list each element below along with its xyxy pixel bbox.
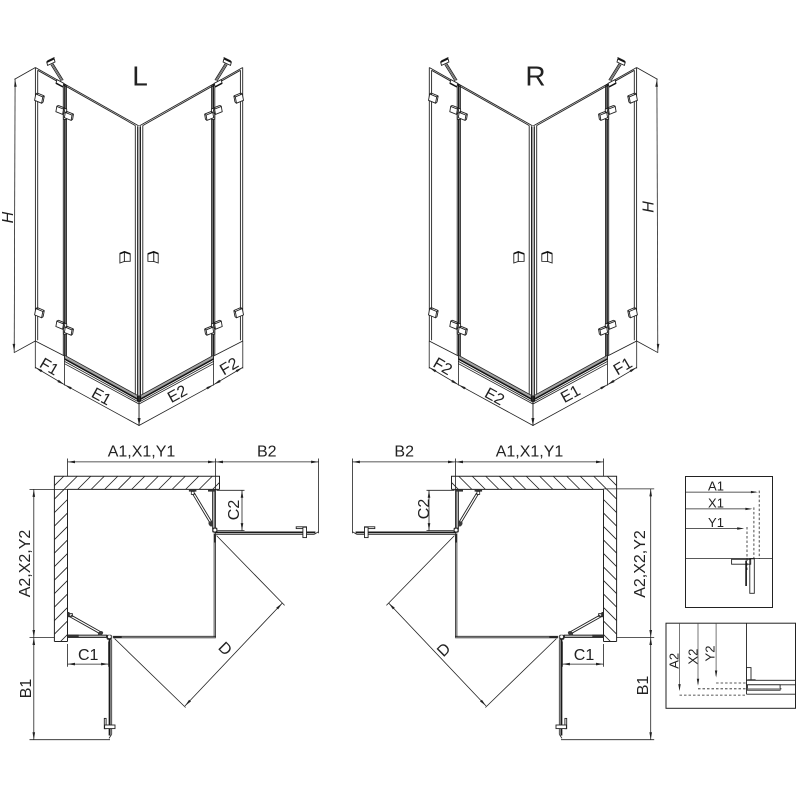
- svg-text:B1: B1: [18, 679, 35, 699]
- svg-text:A1,X1,Y1: A1,X1,Y1: [496, 444, 564, 461]
- svg-text:B1: B1: [635, 676, 652, 696]
- svg-text:C1: C1: [78, 647, 99, 664]
- svg-text:X1: X1: [708, 496, 724, 511]
- svg-text:Y1: Y1: [708, 515, 724, 530]
- svg-text:C2: C2: [416, 499, 433, 520]
- svg-text:A2,X2,Y2: A2,X2,Y2: [632, 530, 649, 598]
- svg-text:C2: C2: [226, 500, 243, 521]
- svg-text:C1: C1: [574, 647, 595, 664]
- svg-text:H: H: [0, 211, 17, 223]
- svg-text:A1,X1,Y1: A1,X1,Y1: [108, 444, 176, 461]
- svg-text:A1: A1: [708, 479, 724, 494]
- svg-text:Y2: Y2: [703, 646, 718, 662]
- svg-text:A2,X2,Y2: A2,X2,Y2: [17, 530, 34, 598]
- svg-text:L: L: [132, 61, 148, 92]
- svg-text:H: H: [641, 201, 658, 213]
- svg-text:B2: B2: [394, 444, 414, 461]
- svg-text:R: R: [525, 61, 545, 92]
- svg-text:B2: B2: [257, 444, 277, 461]
